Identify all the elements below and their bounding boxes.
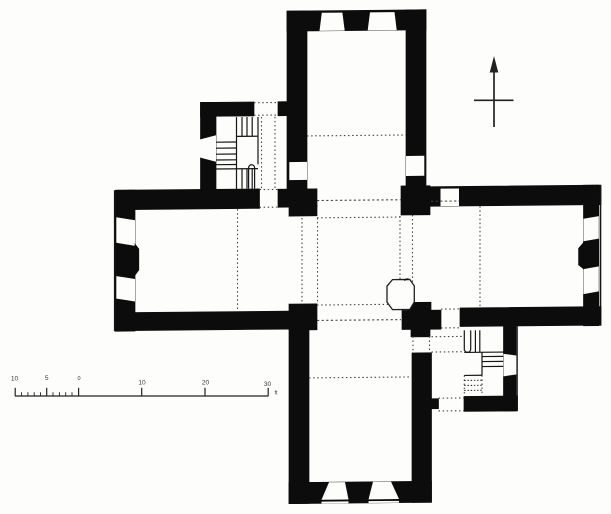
svg-text:5: 5 xyxy=(45,375,49,382)
svg-text:ft: ft xyxy=(274,391,278,397)
svg-text:20: 20 xyxy=(202,380,210,387)
svg-text:30: 30 xyxy=(264,381,272,388)
svg-text:10: 10 xyxy=(11,376,19,383)
svg-text:10: 10 xyxy=(138,380,146,387)
svg-text:0: 0 xyxy=(77,376,80,382)
